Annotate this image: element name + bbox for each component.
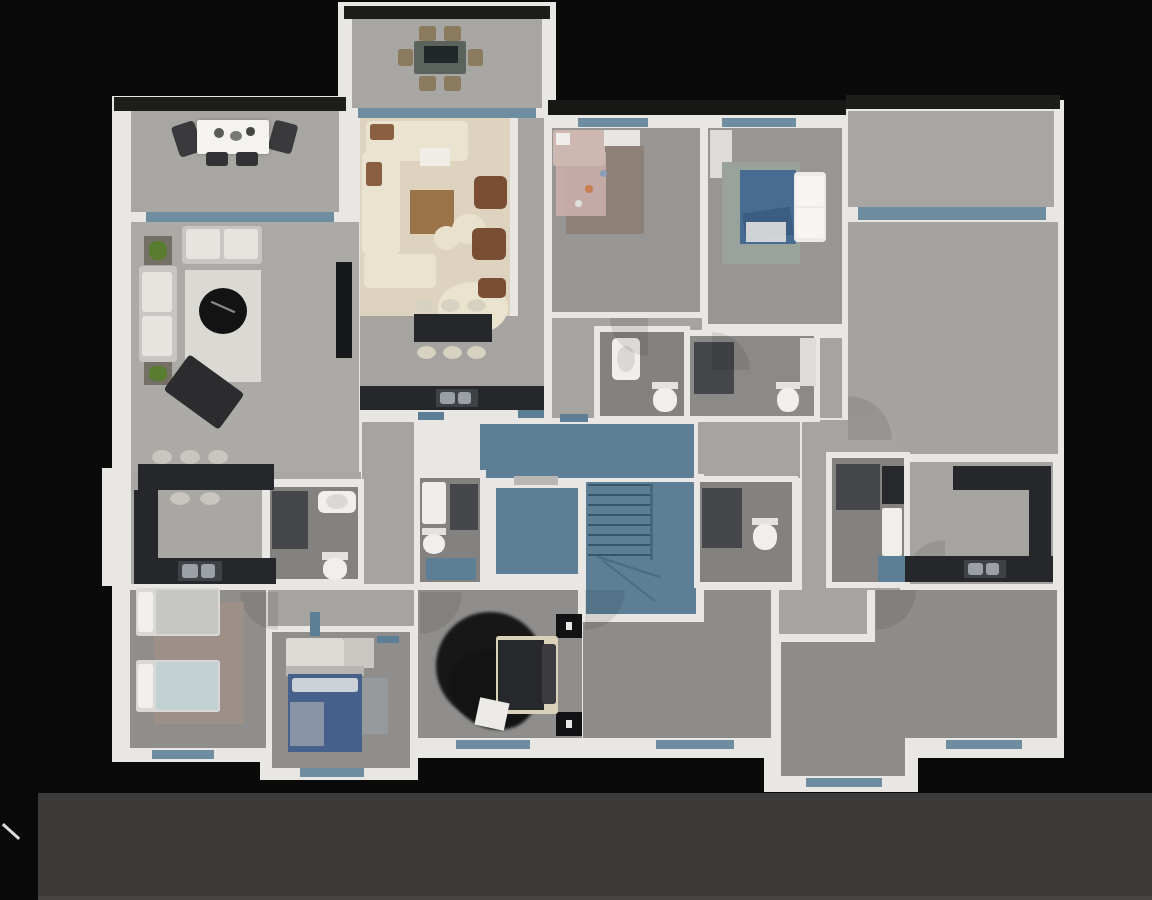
kitchen-a-sink-bowl-2 [201, 564, 215, 578]
floor-corridor-c1 [698, 422, 800, 478]
shelf-kids [604, 130, 640, 146]
window-master-a3 [456, 740, 530, 749]
floor-corridor-a [362, 422, 414, 584]
bathroom-b2-toilet-bowl [777, 388, 799, 412]
pouf-b-2 [434, 226, 459, 250]
island-stool-b-2 [441, 299, 460, 312]
armchair-b-3 [478, 278, 506, 298]
bed-a1-blanket-1 [156, 590, 218, 634]
parapet-shadow-top-terrace [344, 6, 550, 19]
outdoor-chair-bottom-2 [444, 76, 461, 91]
outdoor-chair-bottom-1 [419, 76, 436, 91]
bathroom-c1-shower [702, 488, 742, 548]
bar-stool-a-3 [208, 450, 228, 464]
island-stool-b-4 [417, 346, 436, 359]
kitchen-b-sink-bowl-2 [458, 392, 471, 404]
outdoor-chair-left [398, 49, 413, 66]
window-terrace-top [358, 108, 536, 118]
sofa-b-pillow-brown-2 [366, 162, 382, 186]
cursor-line [2, 823, 20, 840]
wardrobe-a2-white [286, 638, 344, 668]
nightstand-master-1-lamp-icon [566, 622, 572, 630]
window-terrace-left [146, 212, 334, 222]
window-bedroom-a2 [300, 768, 364, 777]
door-band-hall-a2-left [310, 612, 320, 636]
sofa-b-pillow-brown-1 [370, 124, 394, 140]
terrace-dining-chair-bottom-2 [236, 152, 258, 166]
window-room-c3 [946, 740, 1022, 749]
outdoor-chair-top-2 [444, 26, 461, 41]
bottom-panel-highlight [38, 896, 1152, 900]
side-table-b [420, 148, 450, 166]
floor-corridor-b [518, 118, 544, 316]
door-band-hall-b-entry [560, 414, 588, 422]
bed-master-duvet [498, 640, 544, 710]
terrace-dining-chair-bottom-1 [206, 152, 228, 166]
outdoor-table-top [424, 46, 458, 63]
bathroom-a-shower [272, 491, 308, 549]
parapet-shadow-right-terrace [846, 95, 1060, 109]
bed-b-pillow-2 [796, 208, 824, 238]
bar-stool-a-1 [152, 450, 172, 464]
bathroom-c2-shower-tray [878, 556, 905, 582]
bed-kids-pillow [556, 133, 570, 145]
island-stool-b-6 [467, 346, 486, 359]
bar-stool-a-5 [200, 492, 220, 505]
bottom-panel [38, 793, 1152, 900]
bathroom-a-sink-basin [326, 494, 348, 509]
bed-a1-blanket-2 [156, 662, 218, 710]
bed-b-pillow-1 [796, 176, 824, 206]
elevator-cab [496, 488, 578, 574]
island-stool-b-5 [443, 346, 462, 359]
floor-hall-a2 [268, 590, 414, 626]
nightstand-master-2-lamp-icon [566, 720, 572, 728]
bathroom-a-toilet-bowl [323, 558, 347, 580]
bathroom-c2-appliance [882, 466, 904, 504]
wc-a2-toilet-bowl [423, 534, 445, 554]
sofa-a-left-cushion-2 [142, 316, 172, 356]
bed-b-blanket-stripes [746, 222, 786, 242]
sofa-a-left-cushion-1 [142, 272, 172, 312]
bathroom-b2-cabinet [800, 338, 816, 386]
sofa-a-top-cushion-2 [224, 229, 258, 259]
toy-kids-2 [575, 200, 582, 207]
core-landing [480, 424, 694, 478]
toy-kids-3 [600, 170, 607, 177]
bed-a1-pillow-2 [138, 664, 153, 708]
window-bedroom-b-top [722, 118, 796, 127]
bed-master-pillows [542, 644, 556, 704]
sofa-b-chaise-bottom [364, 254, 436, 288]
floor-terrace-right [848, 111, 1054, 207]
kitchen-c-sink-bowl-1 [968, 563, 983, 575]
floor-corridor-c3 [779, 590, 867, 634]
wc-a2-shower [450, 484, 478, 530]
plant-a-1 [149, 241, 167, 260]
floor-plan-screenshot [0, 0, 1152, 900]
bar-stool-a-2 [180, 450, 200, 464]
island-stool-b-1 [415, 299, 434, 312]
kitchen-b-sink-bowl-1 [440, 392, 455, 404]
window-kids-top [578, 118, 648, 127]
bathroom-b1-toilet-bowl [653, 388, 677, 412]
wall-pier-left [102, 468, 120, 586]
wall-living-b-corridor [510, 118, 518, 282]
window-bedroom-a1 [152, 750, 214, 759]
door-band-corridor-b [518, 410, 544, 418]
armchair-b-2 [472, 228, 506, 260]
bed-a1-pillow-1 [138, 592, 153, 632]
elevator-door-band [514, 476, 558, 485]
kitchen-c-counter-right [1029, 466, 1051, 562]
wc-a2-vanity [422, 482, 446, 524]
outdoor-chair-right [468, 49, 483, 66]
bed-a2-blanket-fold [290, 702, 324, 746]
bathroom-c1-toilet-bowl [753, 524, 777, 550]
outdoor-chair-top-1 [419, 26, 436, 41]
terrace-dining-decor-3 [246, 127, 255, 136]
parapet-shadow-unit-b [548, 100, 846, 115]
terrace-dining-decor-1 [214, 128, 224, 138]
floor-plan-canvas [0, 0, 1152, 900]
sofa-a-top-cushion-1 [186, 229, 220, 259]
stair-divider [650, 484, 653, 560]
bed-a2-pillows [292, 678, 358, 692]
kitchen-a-bar [138, 464, 274, 490]
kitchen-c-sink-bowl-2 [986, 563, 999, 575]
plant-a-2 [149, 366, 167, 381]
bathroom-c2-shower [836, 464, 880, 510]
kitchen-b-island [414, 314, 492, 342]
toy-kids-1 [585, 185, 593, 193]
window-room-c1 [656, 740, 734, 749]
armchair-b-1 [474, 176, 507, 209]
window-terrace-right [858, 207, 1046, 220]
parapet-shadow-left-terrace [114, 97, 346, 111]
bar-stool-a-4 [170, 492, 190, 505]
tv-panel-a [336, 262, 352, 358]
bathroom-c2-door [882, 508, 902, 556]
window-room-c2 [806, 778, 882, 787]
coffee-table-a [199, 288, 247, 334]
terrace-dining-decor-2 [230, 131, 242, 141]
door-band-hall-a2-right [377, 636, 399, 643]
door-band-corridor-a [418, 412, 444, 420]
master-ottoman-cube [474, 697, 509, 731]
island-stool-b-3 [467, 299, 486, 312]
stair-steps [588, 484, 650, 562]
wc-a2-shower-tray [426, 558, 476, 580]
kitchen-a-sink-bowl-1 [182, 564, 198, 578]
